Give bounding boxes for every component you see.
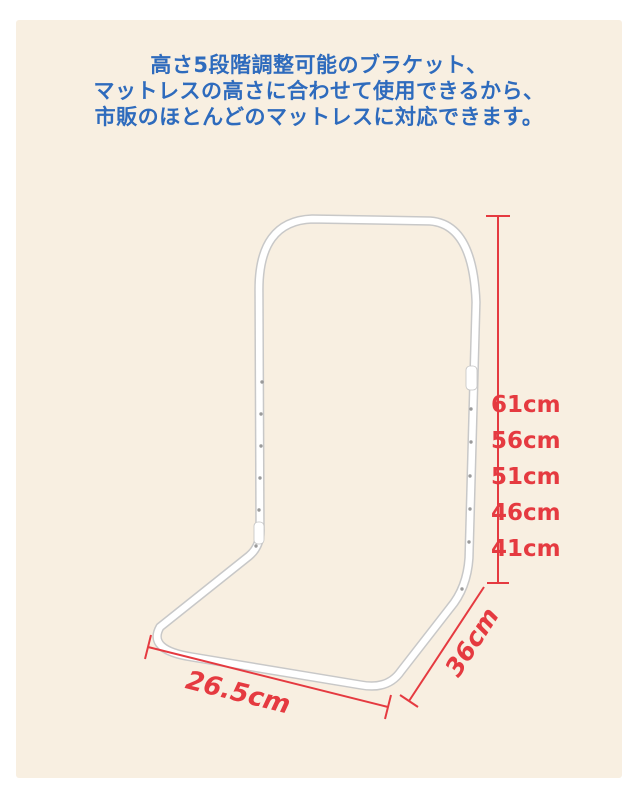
height-label-46cm: 46cm xyxy=(491,501,561,525)
height-label-61cm: 61cm xyxy=(491,393,561,417)
post-hole xyxy=(257,508,260,511)
frame-tube-core xyxy=(157,219,476,686)
post-hole xyxy=(467,540,470,543)
post-hole xyxy=(469,407,472,410)
bracket-frame-tube xyxy=(157,219,477,686)
height-label-41cm: 41cm xyxy=(491,537,561,561)
right-post-joint-sleeve xyxy=(466,366,477,390)
post-hole xyxy=(259,412,262,415)
post-hole xyxy=(469,440,472,443)
post-hole xyxy=(254,544,257,547)
post-hole xyxy=(460,587,463,590)
product-infographic-page: 高さ5段階調整可能のブラケット、 マットレスの高さに合わせて使用できるから、 市… xyxy=(0,0,640,797)
frame-tube-outline xyxy=(157,219,476,686)
height-label-51cm: 51cm xyxy=(491,465,561,489)
post-hole xyxy=(468,474,471,477)
post-hole xyxy=(260,380,263,383)
depth-dimension-end-tick xyxy=(400,695,418,707)
height-label-56cm: 56cm xyxy=(491,429,561,453)
post-hole xyxy=(468,507,471,510)
post-hole xyxy=(258,476,261,479)
left-post-joint-sleeve xyxy=(254,522,264,544)
post-hole xyxy=(259,444,262,447)
